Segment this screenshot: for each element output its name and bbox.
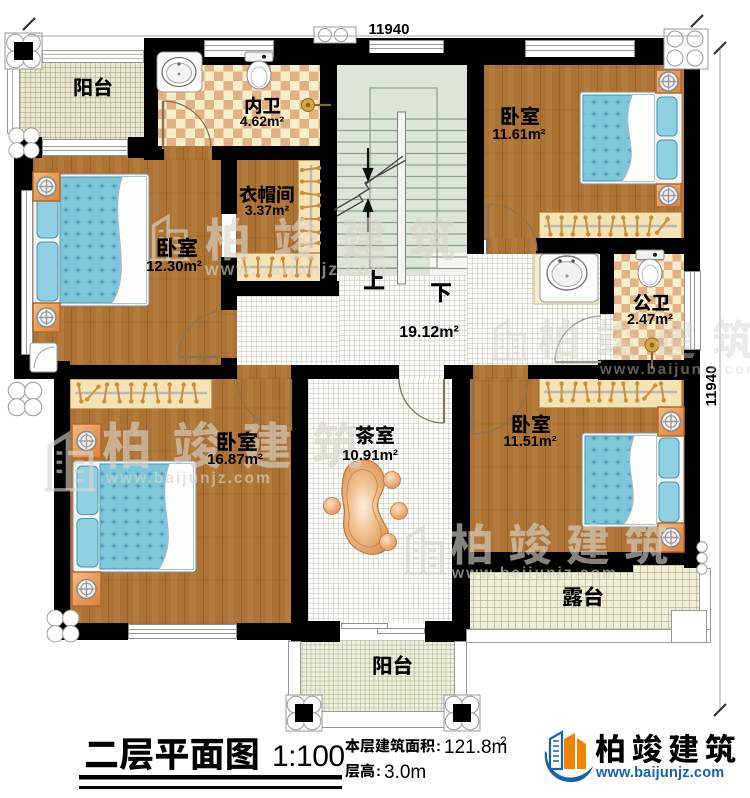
svg-text:11940: 11940 [369,21,410,38]
svg-text:16.87m²: 16.87m² [207,451,263,468]
svg-text:www.baijunjz.com: www.baijunjz.com [105,470,272,487]
svg-text:11.61m²: 11.61m² [492,127,545,143]
svg-text:www.baijunjz.com: www.baijunjz.com [599,361,750,378]
svg-text:4.62m²: 4.62m² [240,113,285,129]
svg-text:www.baijunjz.com: www.baijunjz.com [451,565,618,582]
svg-text:www.baijunjz.com: www.baijunjz.com [595,765,724,781]
svg-text:2.47m²: 2.47m² [627,312,673,328]
svg-text:1:100: 1:100 [272,740,345,773]
svg-text::: : [436,738,441,755]
svg-text:2: 2 [500,734,507,748]
svg-text:12.30m²: 12.30m² [146,258,202,275]
svg-text:19.12m²: 19.12m² [399,324,459,341]
svg-text:www.baijunjz.com: www.baijunjz.com [204,259,388,279]
svg-text:10.91m²: 10.91m² [342,447,398,464]
svg-text:11.51m²: 11.51m² [503,434,556,450]
svg-text:3.37m²: 3.37m² [245,202,290,218]
svg-text::: : [376,763,381,780]
svg-text:121.8m: 121.8m [444,737,507,758]
svg-text:3.0m: 3.0m [384,762,426,783]
